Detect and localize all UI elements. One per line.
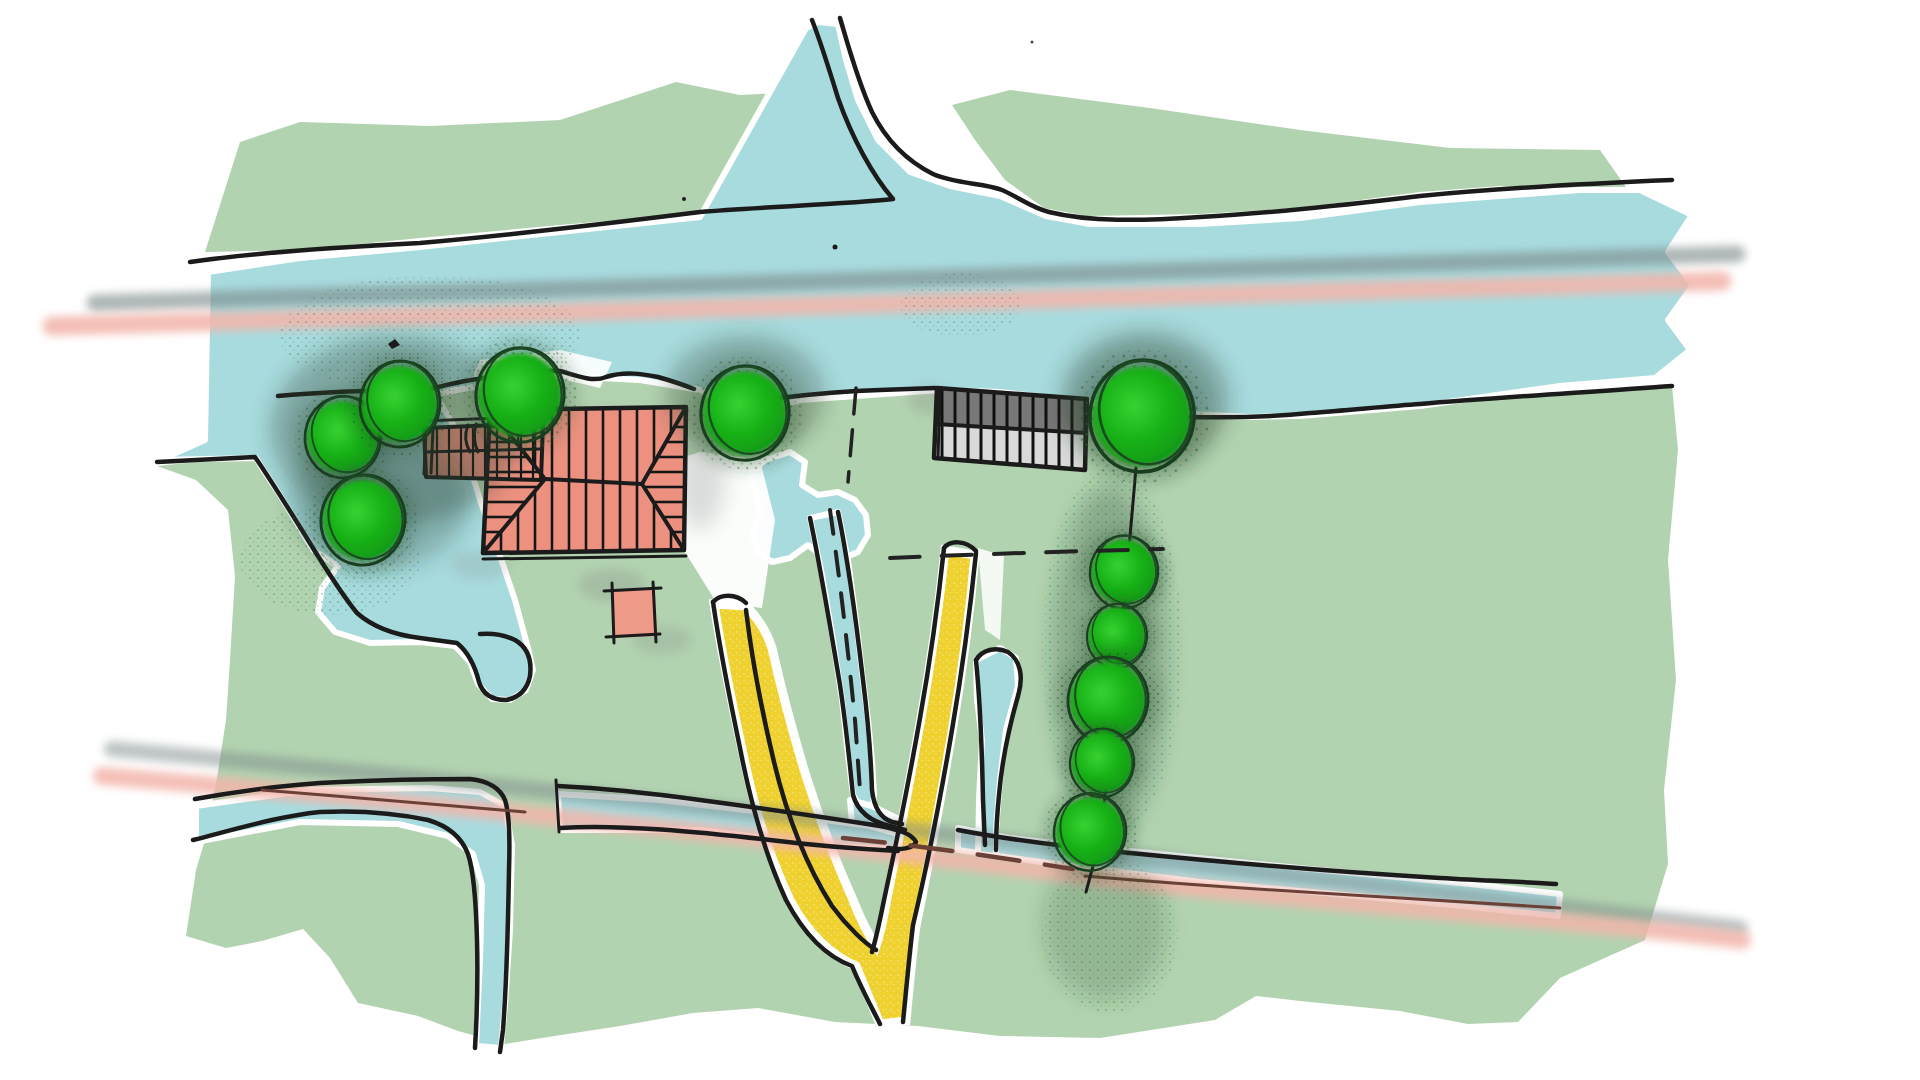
shed-fill — [612, 588, 657, 638]
dot-mark-3 — [1031, 41, 1034, 44]
sketch-svg — [0, 0, 1920, 1080]
garden-shed — [604, 582, 661, 643]
tree-middle — [679, 347, 811, 479]
dot-mark-1 — [833, 245, 838, 250]
tree-west-3 — [300, 457, 426, 583]
site-plan-sketch — [0, 0, 1920, 1080]
tree-west-4 — [454, 329, 586, 461]
tree-west-2 — [340, 344, 460, 464]
dot-mark-2 — [682, 197, 686, 201]
tree-east-large — [1064, 338, 1220, 494]
tree-row-5 — [1036, 778, 1144, 886]
